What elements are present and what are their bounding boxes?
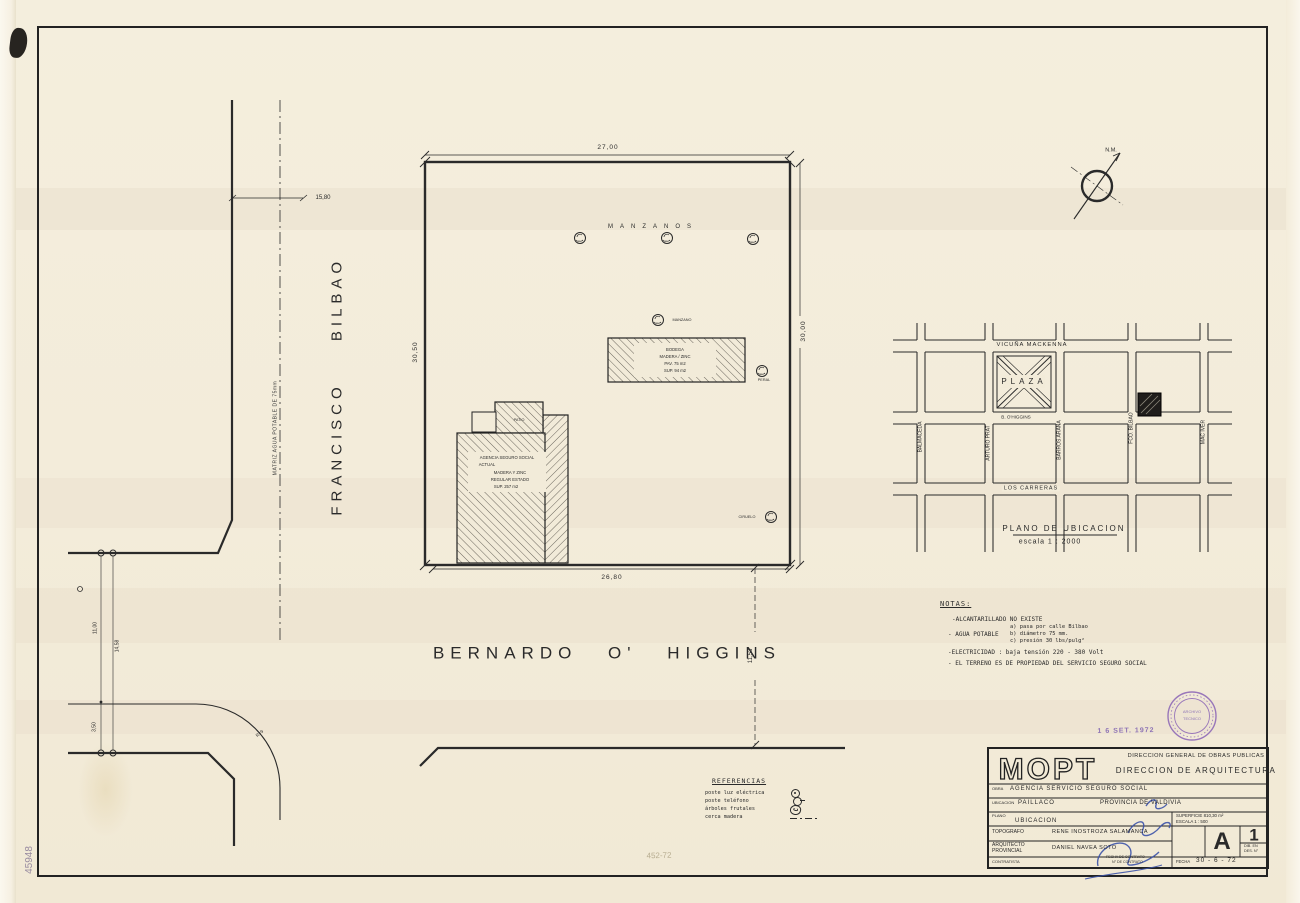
mop-logo: MOPT [999, 753, 1098, 786]
map-street-b-ohiggins: B. O'HIGGINS [999, 416, 1032, 421]
water-main-label: MATRIZ AGUA POTABLE DE 75mm [274, 381, 279, 475]
map-street-fco-bilbao: FCO. BILBAO [1130, 412, 1135, 443]
notes-line-3: -ELECTRICIDAD : baja tensión 220 - 380 V… [948, 650, 1103, 656]
escala-value: ESCALA 1 : 500 [1176, 820, 1208, 824]
notes-line-2c: c) presión 30 lbs/pulg² [1010, 639, 1085, 644]
tree-label-manzano: MANZANO [673, 319, 692, 323]
scanned-site-plan: MOPT BILBAO FRANCISCO MATRIZ AGUA POTABL… [0, 0, 1300, 903]
references-item-1: poste luz eléctrica [705, 791, 764, 796]
references-item-2: poste teléfono [705, 799, 749, 804]
sheet-number: 1 [1249, 827, 1258, 844]
notes-line-2a: a) pasa por calle Bilbao [1010, 625, 1088, 630]
topografo-label: TOPOGRAFO [992, 830, 1024, 835]
plano-value: UBICACION [1015, 818, 1057, 824]
building-line: ACTUAL [479, 463, 496, 467]
sheet-letter: A [1213, 830, 1230, 854]
building-line: REGULAR ESTADO [491, 478, 529, 482]
intersection-lines [68, 550, 280, 846]
notes-line-2: - AGUA POTABLE [948, 632, 999, 638]
building-line: MADERA Y ZINC [494, 471, 526, 475]
notes-line-4: - EL TERRENO ES DE PROPIEDAD DEL SERVICI… [948, 661, 1147, 667]
shed-line: SUP. 94 m2 [664, 369, 686, 373]
street-francisco-bilbao-lines [68, 100, 307, 642]
building-line: AGENCIA SEGURO SOCIAL [480, 456, 534, 460]
map-street-balmaceda: BALMACEDA [919, 422, 924, 453]
inset-map-lines [893, 323, 1232, 552]
map-street-mac-iver: MAC IVER [1202, 420, 1207, 444]
street-name-francisco: FRANCISCO [330, 382, 345, 515]
map-street-barros-arana: BARROS ARANA [1058, 420, 1063, 459]
pencil-number-center: 452-72 [646, 852, 671, 861]
map-plaza-label: PLAZA [1001, 378, 1046, 386]
map-street-arturo-prat: ARTURO PRAT [987, 425, 992, 460]
street-name-ohiggins: BERNARDO O' HIGGINS [433, 645, 781, 662]
references-item-4: cerca madera [705, 815, 742, 820]
notes-title: NOTAS: [940, 601, 971, 608]
map-street-vicuna-mackenna: VICUÑA MACKENNA [994, 343, 1069, 349]
org-line-2: DIRECCION DE ARQUITECTURA [1116, 767, 1277, 775]
fecha-value: 30 - 6 - 72 [1196, 858, 1237, 865]
dim-bottom: 26,80 [601, 575, 622, 582]
north-arrow [1071, 153, 1123, 219]
shed-line: BODEGA [666, 348, 684, 352]
provincia-value: PROVINCIA DE VALDIVIA [1100, 800, 1181, 806]
shed-line: MADERA / ZINC [660, 355, 691, 359]
notes-line-1: -ALCANTARILLADO NO EXISTE [952, 617, 1042, 623]
superficie-value: SUPERFICIE 810,30 m² [1176, 814, 1223, 818]
topografo-value: RENE INOSTROZA SALAMANCA [1052, 830, 1148, 836]
dim-setback: 15,80 [315, 195, 330, 201]
sheet-sub-2: DES. N° [1244, 850, 1258, 854]
map-street-los-carreras: LOS CARRERAS [1002, 486, 1060, 491]
buildings [457, 338, 745, 563]
dim-corner-1: 11,00 [94, 622, 99, 634]
tree-label-ciruelo: CIRUELO [739, 516, 756, 520]
dim-left: 30,50 [413, 341, 420, 362]
obra-label: OBRA [992, 787, 1003, 791]
org-line-1: DIRECCION GENERAL DE OBRAS PUBLICAS [1128, 754, 1265, 760]
north-label: N.M. [1105, 148, 1117, 154]
notes-line-2b: b) diámetro 75 mm. [1010, 632, 1068, 637]
date-stamp: 1 6 SET. 1972 [1097, 727, 1154, 735]
plan-linework: MOPT [0, 0, 1300, 903]
plano-label: PLANO [992, 814, 1006, 818]
street-ohiggins-south-edge [420, 748, 845, 766]
orchard-label: MANZANOS [608, 224, 698, 230]
obra-value: AGENCIA SERVICIO SEGURO SOCIAL [1010, 786, 1148, 792]
arquitecto-label-2: PROVINCIAL [992, 849, 1022, 854]
ubicacion-label: UBICACION [992, 801, 1014, 805]
contratista-label: CONTRATISTA [992, 860, 1020, 864]
shed-line: PAV. 75 m2 [664, 362, 685, 366]
inset-site-marker [1138, 393, 1161, 416]
building-porch [472, 412, 496, 432]
references-item-3: árboles frutales [705, 807, 755, 812]
building-annex-label: PATIO [514, 419, 525, 423]
tree-label-peral: PERAL [758, 379, 770, 383]
dim-top: 27,00 [597, 145, 618, 152]
dim-right: 30,00 [801, 320, 808, 341]
building-line: SUP. 257 m2 [494, 485, 518, 489]
pencil-number-left: 45948 [25, 846, 35, 874]
map-scale: escala 1 : 2000 [1019, 539, 1081, 546]
wood-fence-icon [790, 818, 820, 819]
dim-corner-2: 14,58 [116, 640, 121, 653]
references-title: REFERENCIAS [712, 778, 766, 785]
building-wing [543, 415, 568, 563]
seal-text-1: ARCHIVO [1183, 710, 1201, 714]
street-name-bilbao: BILBAO [330, 257, 345, 341]
firma-note-2: N° DE CONTRATO [1112, 861, 1143, 865]
seal-text-2: TECNICO [1183, 717, 1201, 721]
map-caption: PLANO DE UBICACION [1002, 525, 1125, 533]
arquitecto-value: DANIEL NAVEA SOTO [1052, 846, 1117, 852]
fecha-label: FECHA [1176, 860, 1190, 864]
dim-corner-3: 3,50 [93, 722, 98, 732]
ubicacion-value: PAILLACO [1018, 800, 1055, 806]
